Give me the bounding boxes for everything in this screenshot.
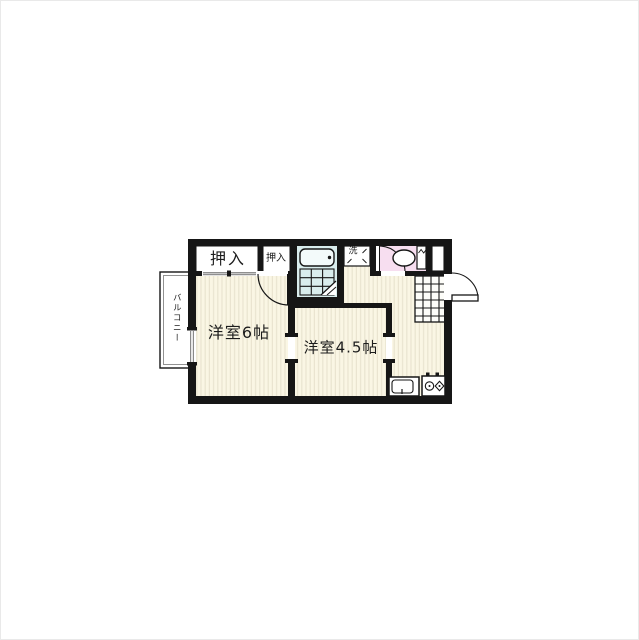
bathroom — [296, 246, 337, 298]
floorplan-image: 押入 押入 洗 バルコニー 洋室6帖 洋室4.5帖 — [0, 0, 639, 640]
two-burner-stove — [422, 373, 445, 397]
toilet-room — [375, 243, 428, 272]
kitchen-sink — [389, 377, 419, 396]
closet-small-label: 押入 — [266, 254, 286, 264]
shoe-cabinet — [432, 246, 444, 271]
entrance-door — [452, 273, 478, 301]
balcony-label: バルコニー — [172, 293, 181, 343]
bathtub — [300, 249, 334, 266]
toilet-door-panel — [376, 245, 380, 272]
closet-large-label: 押入 — [210, 251, 246, 267]
laundry-label: 洗 — [348, 248, 357, 257]
entry-tile-floor — [415, 276, 446, 322]
room-main-label: 洋室6帖 — [208, 325, 270, 341]
room-second-label: 洋室4.5帖 — [304, 341, 379, 356]
floorplan-drawing — [0, 0, 639, 640]
